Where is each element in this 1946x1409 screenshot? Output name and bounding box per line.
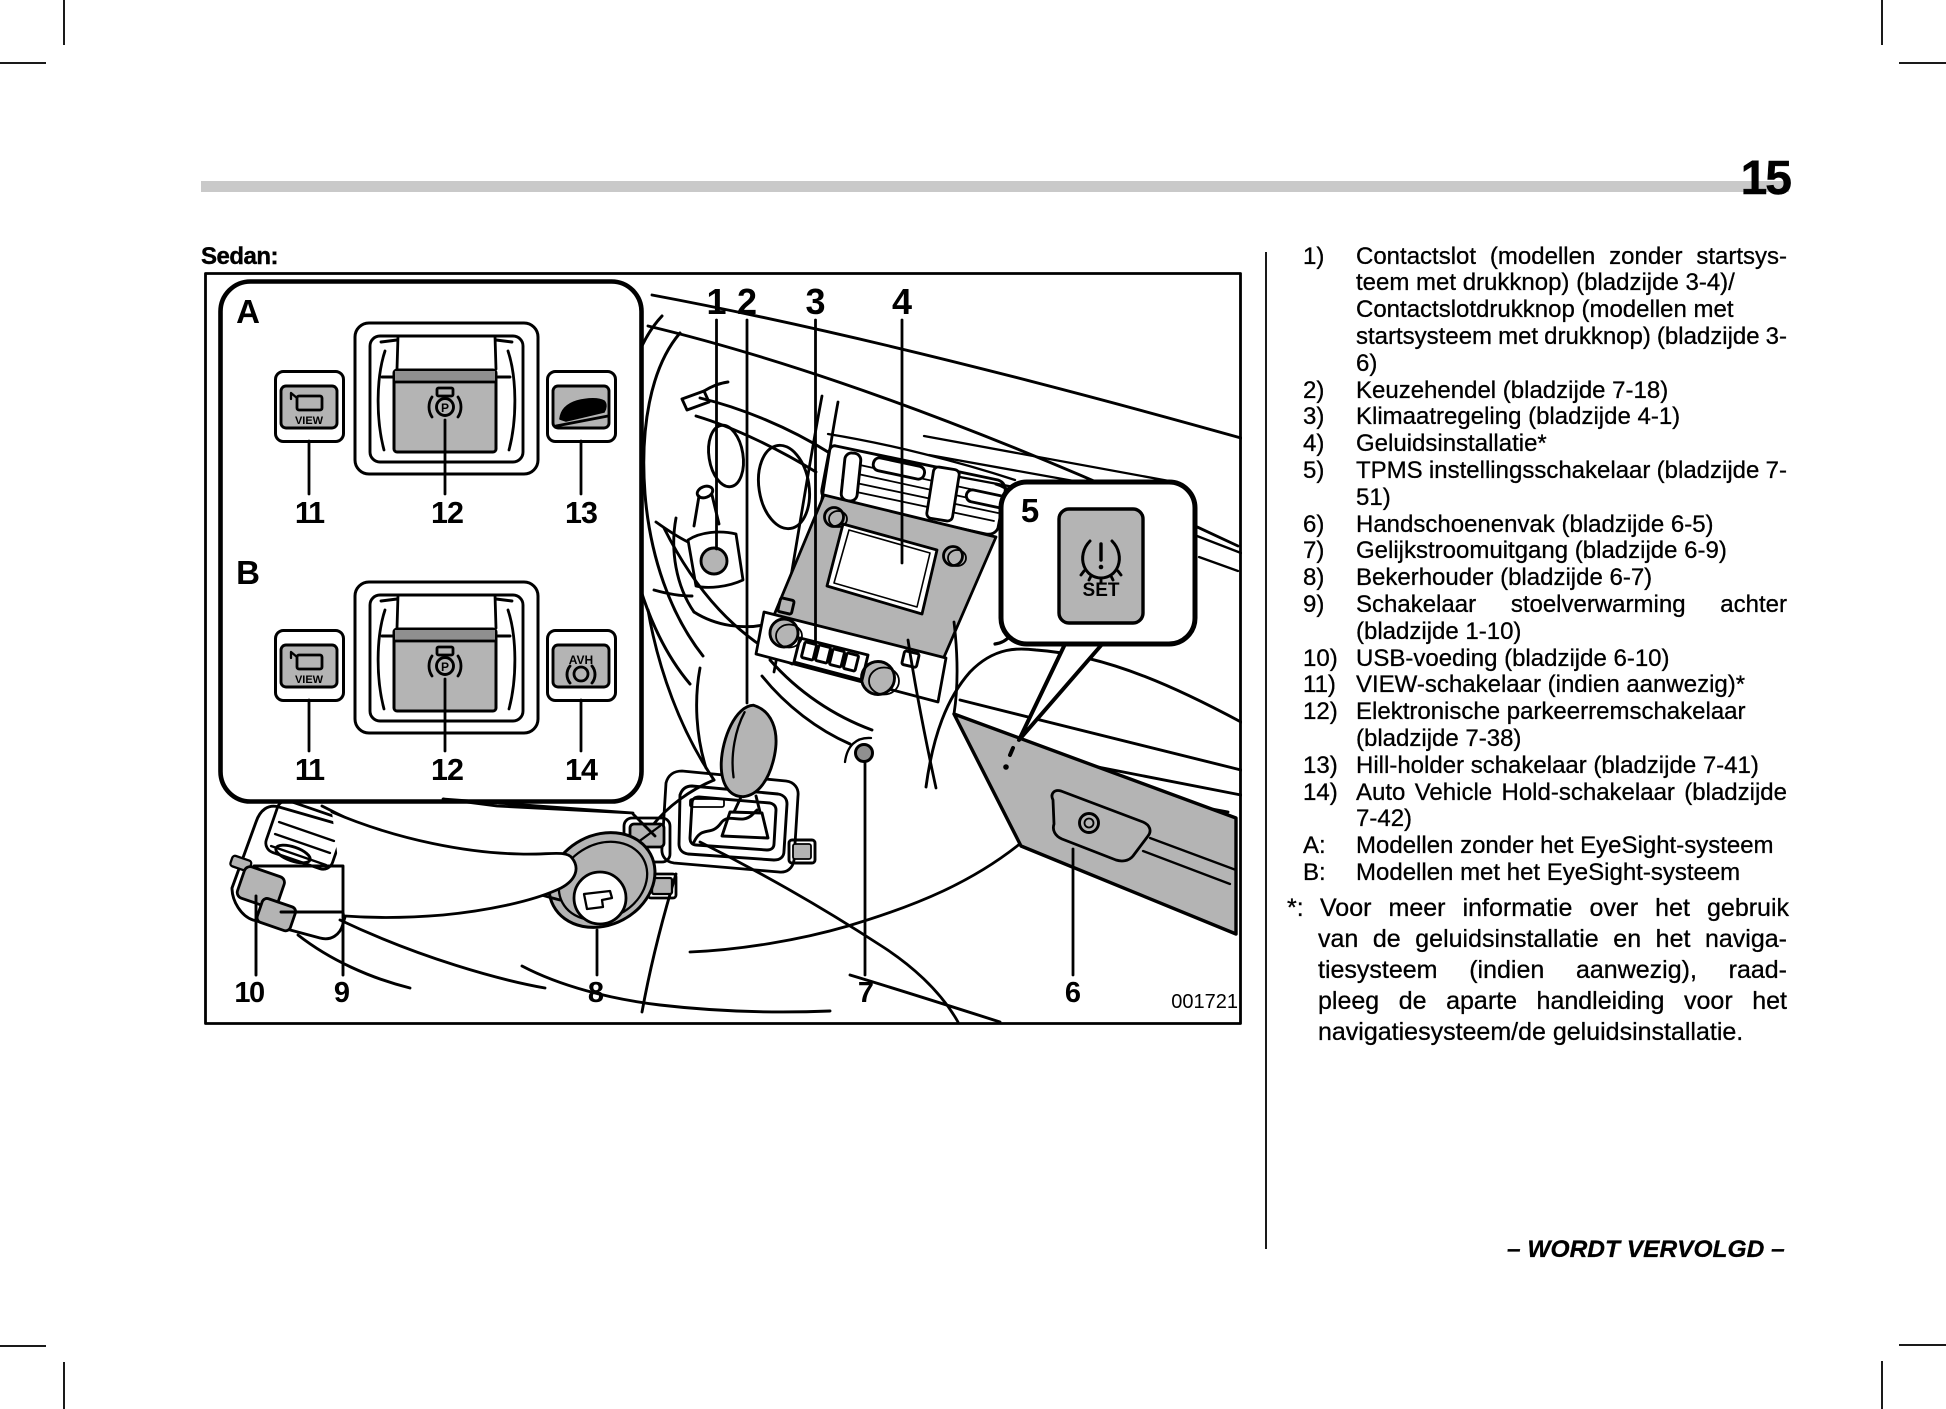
svg-text:8: 8 [588,977,604,1009]
svg-text:7: 7 [858,977,874,1009]
svg-text:10: 10 [234,977,264,1009]
svg-text:B: B [236,554,260,591]
svg-text:13: 13 [565,496,597,530]
svg-text:9: 9 [334,977,350,1009]
svg-text:VIEW: VIEW [295,415,324,427]
svg-text:12: 12 [431,753,463,787]
svg-text:AVH: AVH [569,653,593,667]
svg-text:P: P [441,401,449,415]
svg-text:P: P [441,660,449,674]
svg-text:3: 3 [805,281,825,322]
svg-text:SET: SET [1083,580,1120,601]
svg-text:001721: 001721 [1171,991,1238,1013]
svg-text:5: 5 [1021,492,1039,529]
svg-text:11: 11 [295,753,325,787]
svg-text:14: 14 [565,753,598,787]
svg-text:1: 1 [706,281,726,322]
svg-text:4: 4 [892,281,912,322]
svg-text:2: 2 [737,281,757,322]
svg-text:11: 11 [295,496,325,530]
svg-text:A: A [236,293,260,330]
svg-text:VIEW: VIEW [295,674,324,686]
svg-text:6: 6 [1065,977,1081,1009]
svg-text:12: 12 [431,496,463,530]
